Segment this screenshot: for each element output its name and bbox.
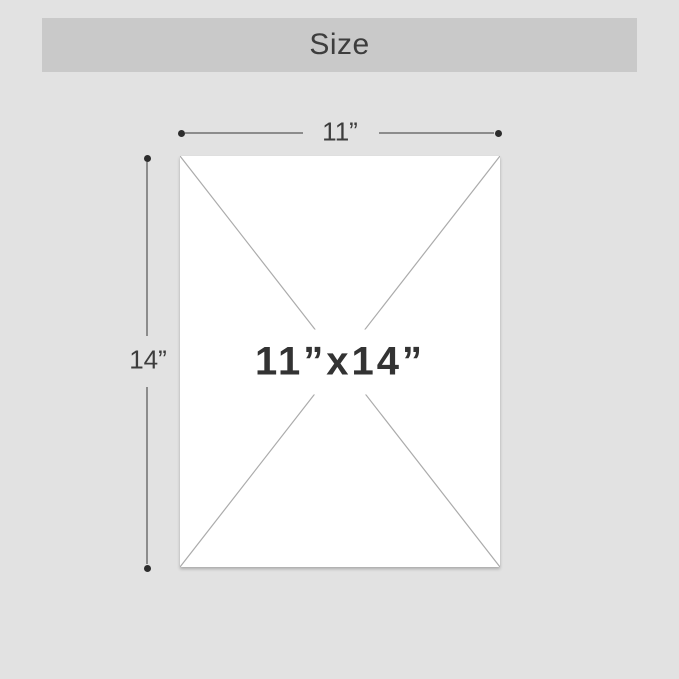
height-dimension-top-dot bbox=[144, 155, 151, 162]
size-diagram-page: Size 11”x14” 11” 14” bbox=[0, 0, 679, 679]
width-dimension-left-line bbox=[185, 132, 303, 134]
width-dimension-right-line bbox=[379, 132, 494, 134]
paper-outline: 11”x14” bbox=[180, 156, 500, 567]
width-dimension-right-dot bbox=[495, 130, 502, 137]
page-title: Size bbox=[309, 28, 369, 62]
height-dimension-label: 14” bbox=[129, 345, 167, 376]
height-dimension-top-line bbox=[146, 162, 148, 336]
width-dimension-label: 11” bbox=[322, 117, 358, 148]
height-dimension-bottom-dot bbox=[144, 565, 151, 572]
height-dimension-bottom-line bbox=[146, 387, 148, 564]
width-dimension-left-dot bbox=[178, 130, 185, 137]
header-bar: Size bbox=[42, 18, 637, 72]
paper-size-label: 11”x14” bbox=[243, 329, 437, 394]
